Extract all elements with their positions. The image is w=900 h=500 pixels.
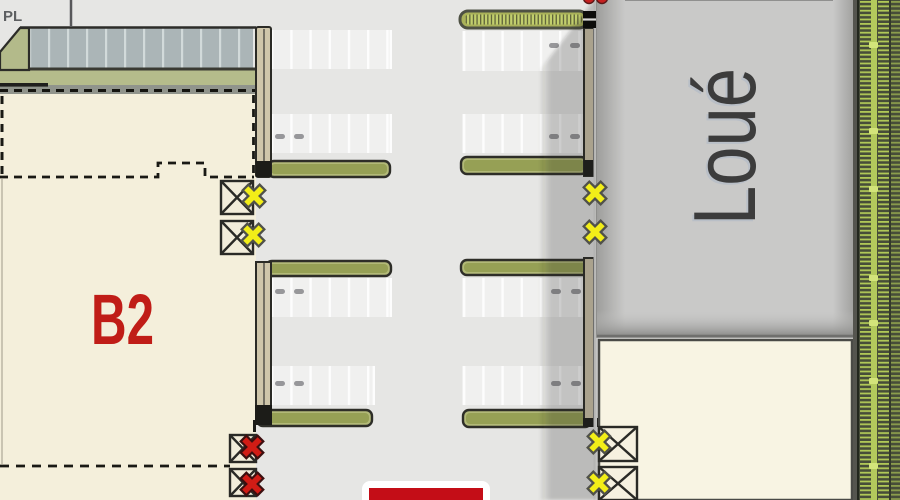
svg-text:B2: B2 bbox=[91, 281, 154, 360]
svg-text:Loué: Loué bbox=[675, 68, 774, 225]
svg-text:PL: PL bbox=[3, 8, 22, 25]
